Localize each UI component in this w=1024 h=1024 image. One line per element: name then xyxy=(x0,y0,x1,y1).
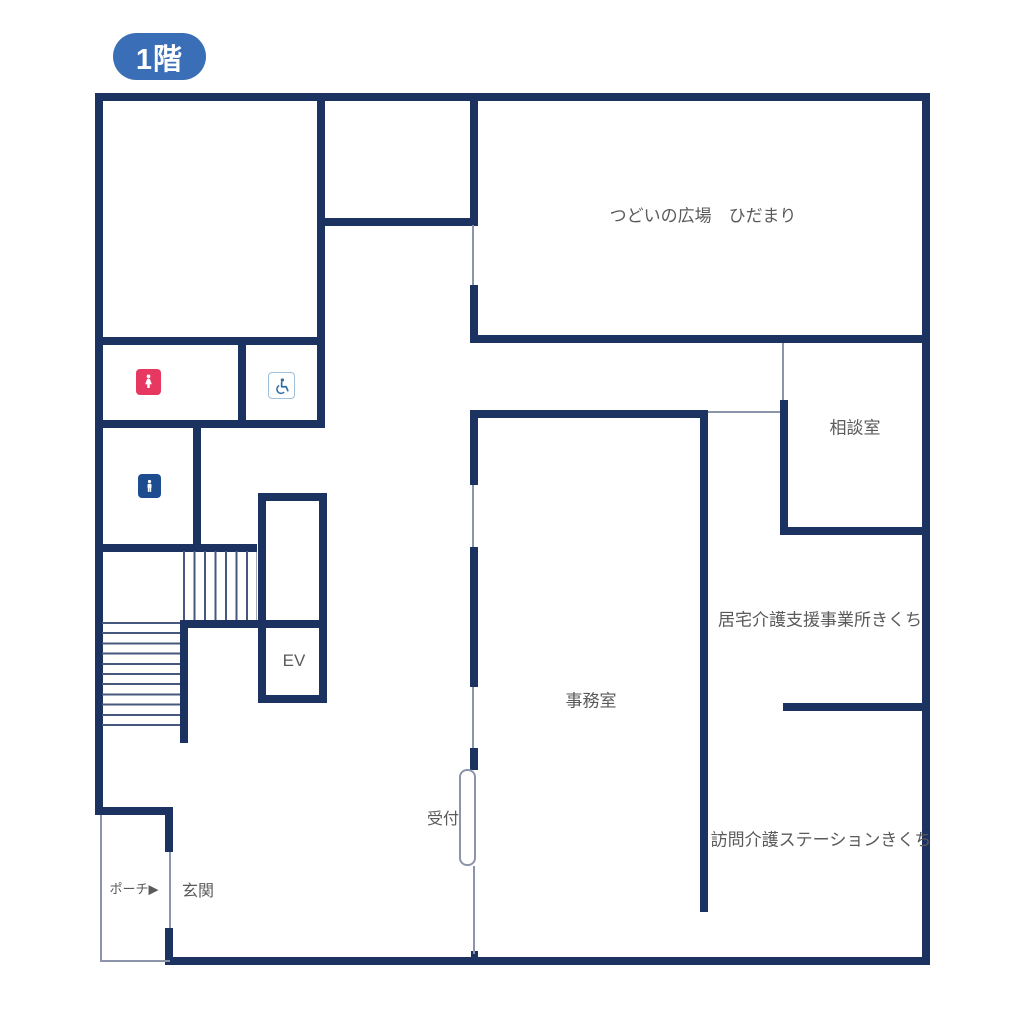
room-label-ev: EV xyxy=(283,651,306,671)
wall-mens-right xyxy=(193,428,201,551)
wall-toilet-divider xyxy=(238,337,246,428)
womens-toilet-icon xyxy=(136,369,161,395)
opening-kyotaku-top xyxy=(708,411,780,413)
wall-ev-right xyxy=(319,493,327,703)
wall-genkan-west-upper xyxy=(165,807,173,852)
opening-jimu-west-lower xyxy=(472,687,474,748)
room-label-tsudoi: つどいの広場 ひだまり xyxy=(610,202,797,227)
wall-jimu-east xyxy=(700,410,708,912)
wall-stairs-right xyxy=(180,620,188,743)
room-label-houmon: 訪問介護ステーションきくち xyxy=(711,826,932,851)
stairs-lower-flight xyxy=(102,622,180,734)
wall-outer-top xyxy=(95,93,930,101)
room-label-jimu: 事務室 xyxy=(566,687,617,712)
wall-jimu-top xyxy=(470,410,708,418)
opening-jimu-west-bottom xyxy=(473,866,475,954)
room-label-kyotaku: 居宅介護支援事業所きくち xyxy=(718,606,922,631)
wall-tsudoi-bottom xyxy=(470,335,930,343)
wall-outer-bottom xyxy=(168,957,930,965)
opening-jimu-west-upper xyxy=(472,485,474,547)
porch-bottom-line xyxy=(100,960,170,962)
wall-entry-top xyxy=(95,807,173,815)
wall-shaft-top xyxy=(258,493,327,501)
wall-soudan-west xyxy=(780,400,788,535)
wall-toilet-top xyxy=(95,337,324,345)
wall-toilet-mid xyxy=(95,420,324,428)
accessible-toilet-icon xyxy=(268,372,295,399)
wall-stairs-landing xyxy=(183,620,327,628)
wall-topmiddle-room-right xyxy=(470,100,478,225)
room-label-porch: ポーチ▶ xyxy=(110,879,159,898)
opening-soudan-door xyxy=(782,343,784,400)
wall-soudan-bottom xyxy=(780,527,930,535)
floor-plan: 1階 xyxy=(0,0,1024,1024)
room-label-soudan: 相談室 xyxy=(830,414,881,439)
floor-badge: 1階 xyxy=(113,33,206,80)
opening-genkan-door xyxy=(169,852,171,928)
wall-kyotaku-houmon-divider xyxy=(783,703,930,711)
reception-counter xyxy=(459,769,476,866)
wall-shaft-left xyxy=(258,493,266,627)
opening-tsudoi-left xyxy=(472,225,474,285)
wall-jimu-west-a xyxy=(470,410,478,485)
wall-topmiddle-room-bottom xyxy=(317,218,478,226)
wall-jimu-west-c xyxy=(470,748,478,770)
stairs-upper-flight xyxy=(183,551,257,620)
wall-ev-left xyxy=(258,627,266,703)
porch-left-line xyxy=(100,815,102,962)
room-label-uketsuke: 受付 xyxy=(427,805,459,829)
wall-ev-bottom xyxy=(258,695,327,703)
wall-jimu-west-b xyxy=(470,547,478,687)
wall-topleft-room-right xyxy=(317,100,325,428)
mens-toilet-icon xyxy=(138,474,161,498)
room-label-genkan: 玄関 xyxy=(182,877,214,901)
